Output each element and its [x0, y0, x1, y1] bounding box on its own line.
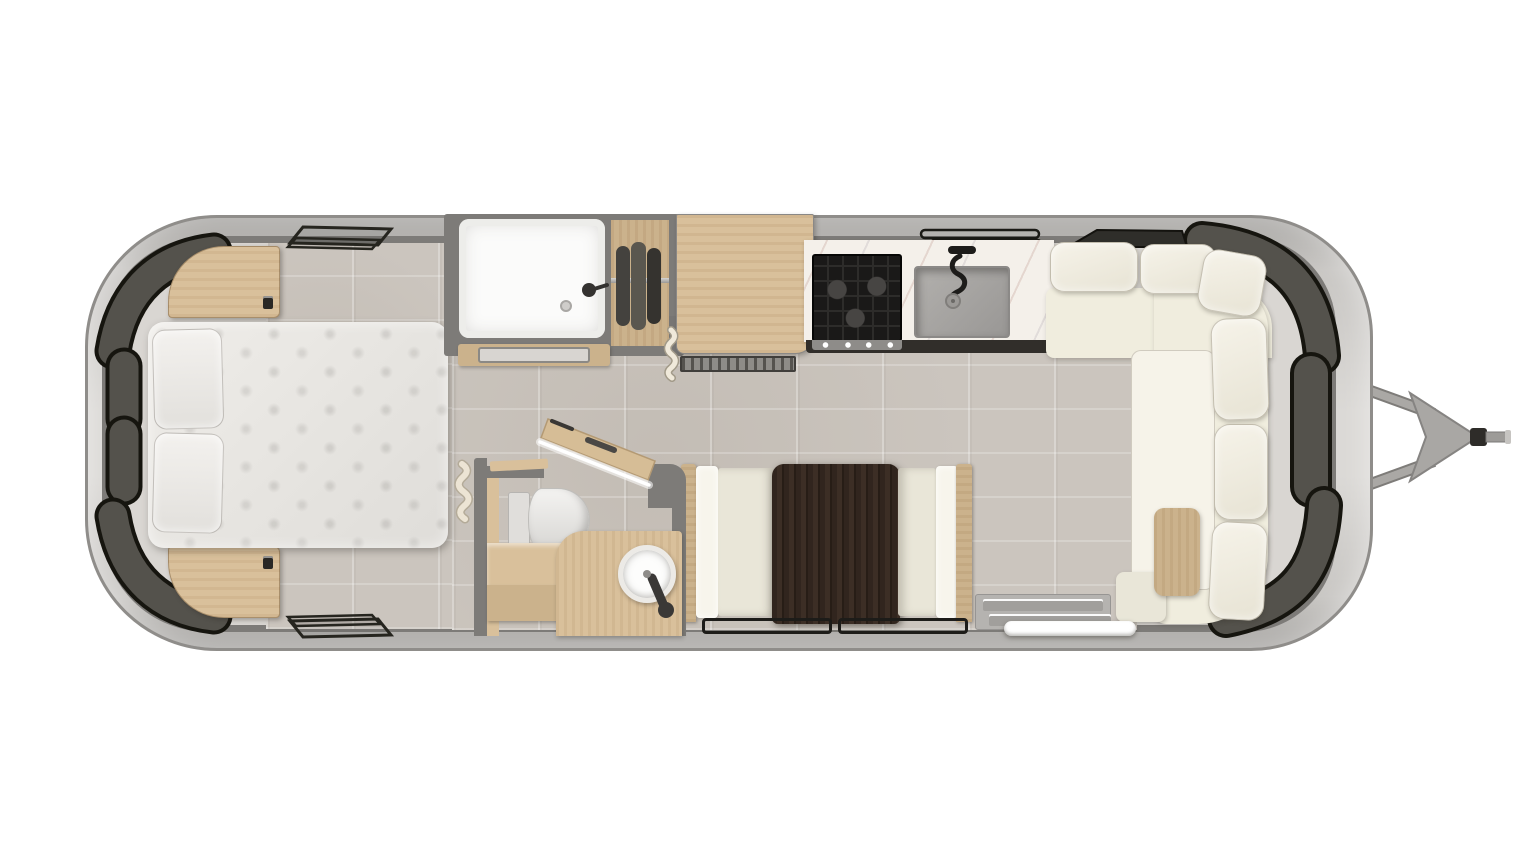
floorplan-canvas — [0, 0, 1536, 864]
shower-head-arm — [594, 285, 607, 289]
shower-head-icon — [582, 283, 596, 297]
bathroom-faucet — [652, 578, 664, 606]
shower-drain — [561, 301, 571, 311]
detail-layer — [0, 0, 1536, 864]
kitchen-sink-drain-dot — [951, 299, 955, 303]
bathroom-sink-drain — [643, 570, 651, 578]
kitchen-faucet-handle — [948, 246, 976, 254]
bathroom-faucet-head — [658, 602, 674, 618]
hall-towel — [459, 464, 469, 519]
